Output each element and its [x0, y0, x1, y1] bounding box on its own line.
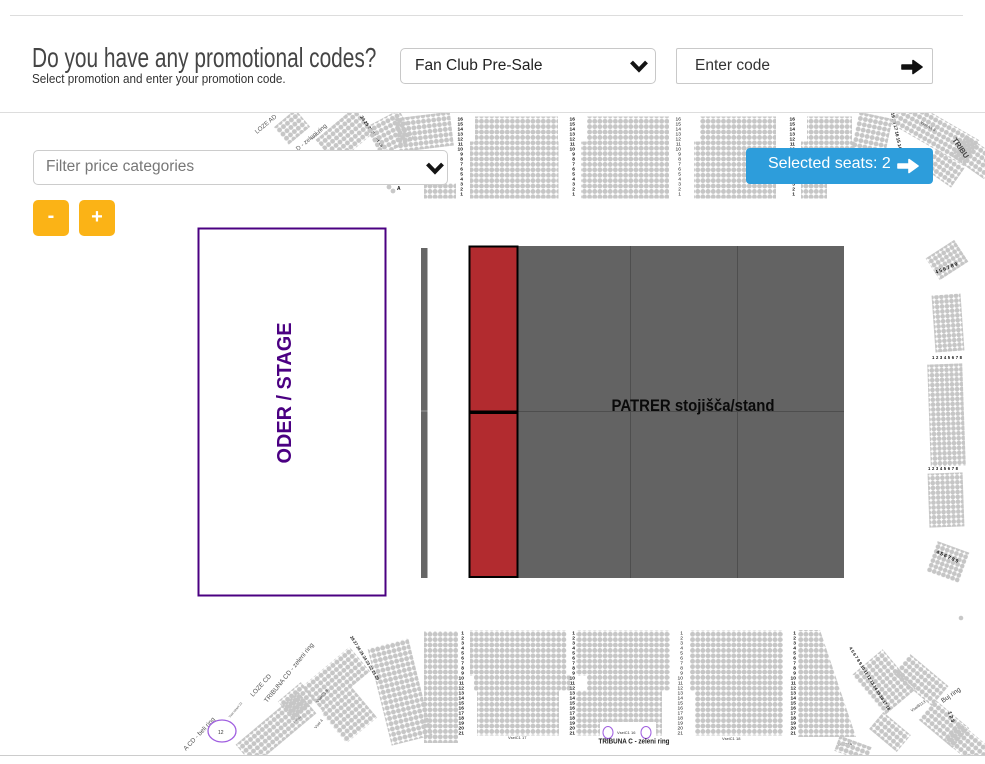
svg-text:LOZE AD: LOZE AD — [254, 113, 279, 136]
svg-text:PATRER stojišča/stand: PATRER stojišča/stand — [612, 397, 775, 415]
svg-text:1: 1 — [460, 192, 463, 198]
svg-text:VseiC1 18: VseiC1 18 — [722, 736, 741, 741]
svg-text:21: 21 — [459, 731, 465, 737]
svg-text:1: 1 — [572, 192, 575, 198]
svg-text:VseiB113: VseiB113 — [910, 699, 927, 713]
svg-text:Vsei 4: Vsei 4 — [313, 717, 324, 729]
svg-text:21: 21 — [570, 731, 576, 737]
svg-text:ODER / STAGE: ODER / STAGE — [274, 323, 296, 464]
svg-text:1 2 3 4 5 6 7 8: 1 2 3 4 5 6 7 8 — [932, 355, 963, 360]
svg-text:21: 21 — [678, 731, 684, 737]
svg-text:1: 1 — [792, 192, 795, 198]
svg-text:21: 21 — [791, 731, 797, 737]
svg-text:TRIBUNA C - zeleni ring: TRIBUNA C - zeleni ring — [599, 737, 670, 746]
svg-text:Vsei strani 22: Vsei strani 22 — [228, 701, 244, 719]
svg-text:VseiC1 16: VseiC1 16 — [617, 730, 636, 735]
svg-text:12: 12 — [218, 730, 224, 736]
svg-text:1 2 3 4 5 6 7 8: 1 2 3 4 5 6 7 8 — [928, 466, 959, 471]
svg-text:VseiC1 17: VseiC1 17 — [508, 735, 527, 740]
svg-text:A: A — [397, 186, 401, 192]
svg-text:A CD - beli ring: A CD - beli ring — [182, 716, 217, 753]
svg-text:1: 1 — [678, 192, 681, 198]
